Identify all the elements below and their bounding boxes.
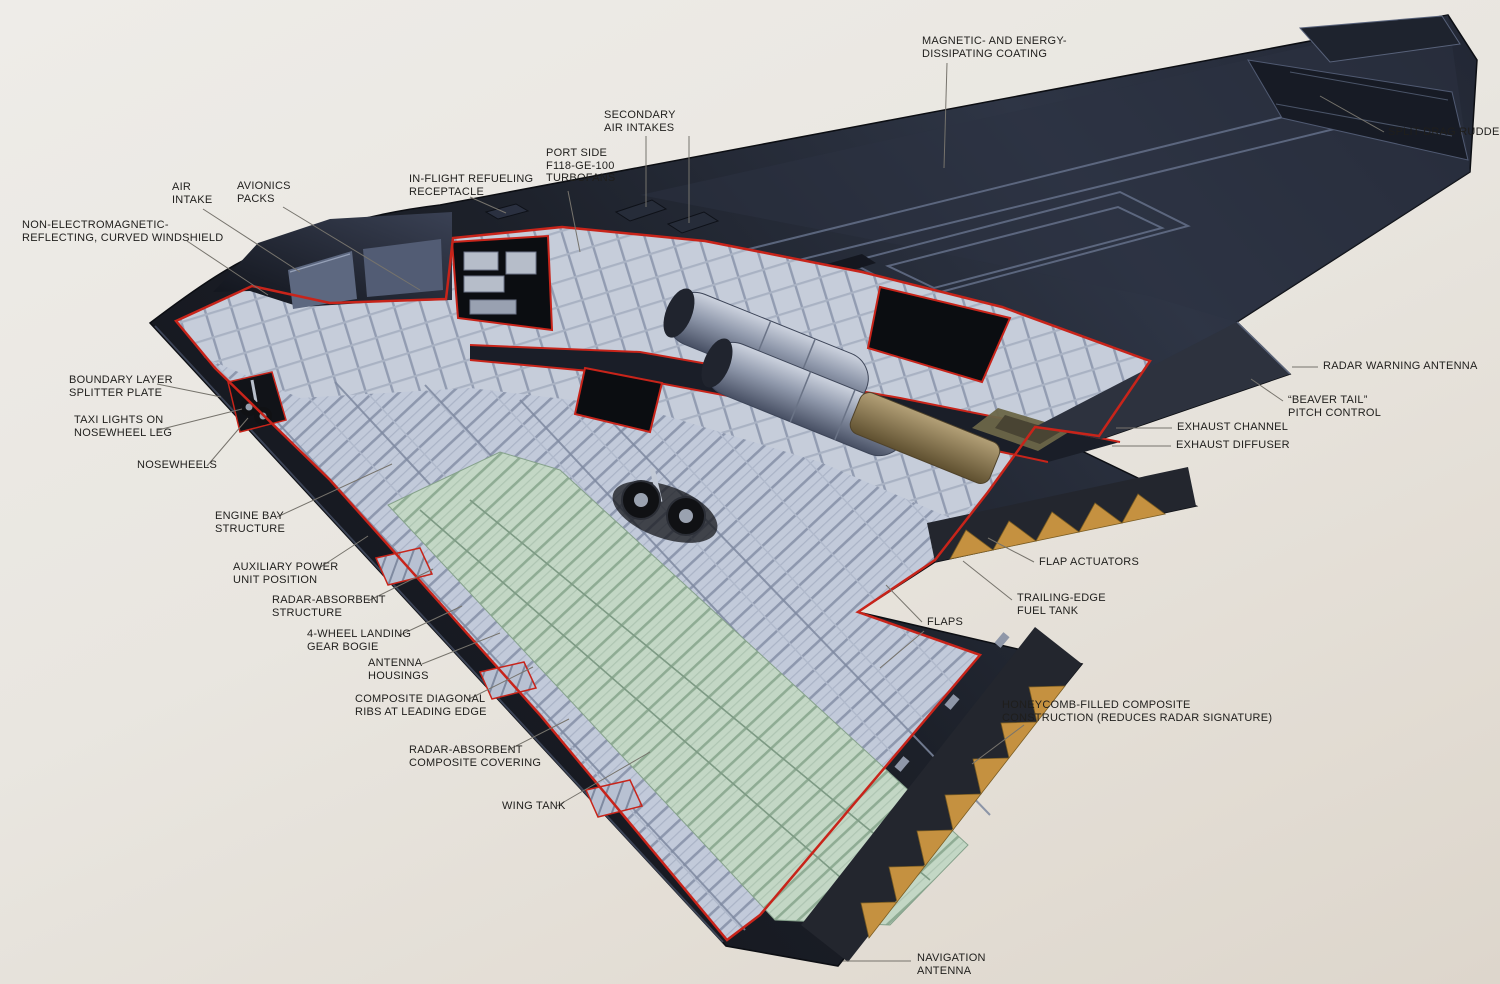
label-nosewheels: NOSEWHEELS [137,459,217,472]
label-air-intake: AIRINTAKE [172,181,212,206]
label-taxi-lights: TAXI LIGHTS ONNOSEWHEEL LEG [74,414,172,439]
label-exhaust-channel: EXHAUST CHANNEL [1177,421,1288,434]
label-secondary-air-intakes: SECONDARYAIR INTAKES [604,109,676,134]
label-inflight-refueling: IN-FLIGHT REFUELINGRECEPTACLE [409,173,533,198]
label-port-turbofans: PORT SIDEF118-GE-100TURBOFANS [546,147,615,185]
label-flap-actuators: FLAP ACTUATORS [1039,556,1139,569]
label-boundary-layer: BOUNDARY LAYERSPLITTER PLATE [69,374,173,399]
label-exhaust-diffuser: EXHAUST DIFFUSER [1176,439,1290,452]
label-antenna-housings: ANTENNAHOUSINGS [368,657,429,682]
label-windshield: NON-ELECTROMAGNETIC-REFLECTING, CURVED W… [22,219,223,244]
b2-cutaway-poster: MAGNETIC- AND ENERGY-DISSIPATING COATING… [0,0,1500,984]
windshield-pane [363,239,443,297]
label-composite-ribs: COMPOSITE DIAGONALRIBS AT LEADING EDGE [355,693,487,718]
label-beaver-tail: “BEAVER TAIL”PITCH CONTROL [1288,394,1381,419]
label-navigation-antenna: NAVIGATIONANTENNA [917,952,986,977]
label-radar-warning: RADAR WARNING ANTENNA [1323,360,1478,373]
label-trailing-edge-tank: TRAILING-EDGEFUEL TANK [1017,592,1106,617]
label-avionics-packs: AVIONICSPACKS [237,180,291,205]
label-engine-bay: ENGINE BAYSTRUCTURE [215,510,285,535]
label-apu: AUXILIARY POWERUNIT POSITION [233,561,338,586]
label-radar-absorbent-structure: RADAR-ABSORBENTSTRUCTURE [272,594,386,619]
b2-cutaway-illustration [0,0,1500,984]
label-magnetic-coating: MAGNETIC- AND ENERGY-DISSIPATING COATING [922,35,1067,60]
label-rac-covering: RADAR-ABSORBENTCOMPOSITE COVERING [409,744,541,769]
label-split-drag-rudder: SPLIT-DRAG RUDDER [1388,126,1500,139]
label-flaps: FLAPS [927,616,963,629]
label-gear-bogie: 4-WHEEL LANDINGGEAR BOGIE [307,628,411,653]
label-wing-tank: WING TANK [502,800,566,813]
label-honeycomb: HONEYCOMB-FILLED COMPOSITECONSTRUCTION (… [1002,699,1272,724]
